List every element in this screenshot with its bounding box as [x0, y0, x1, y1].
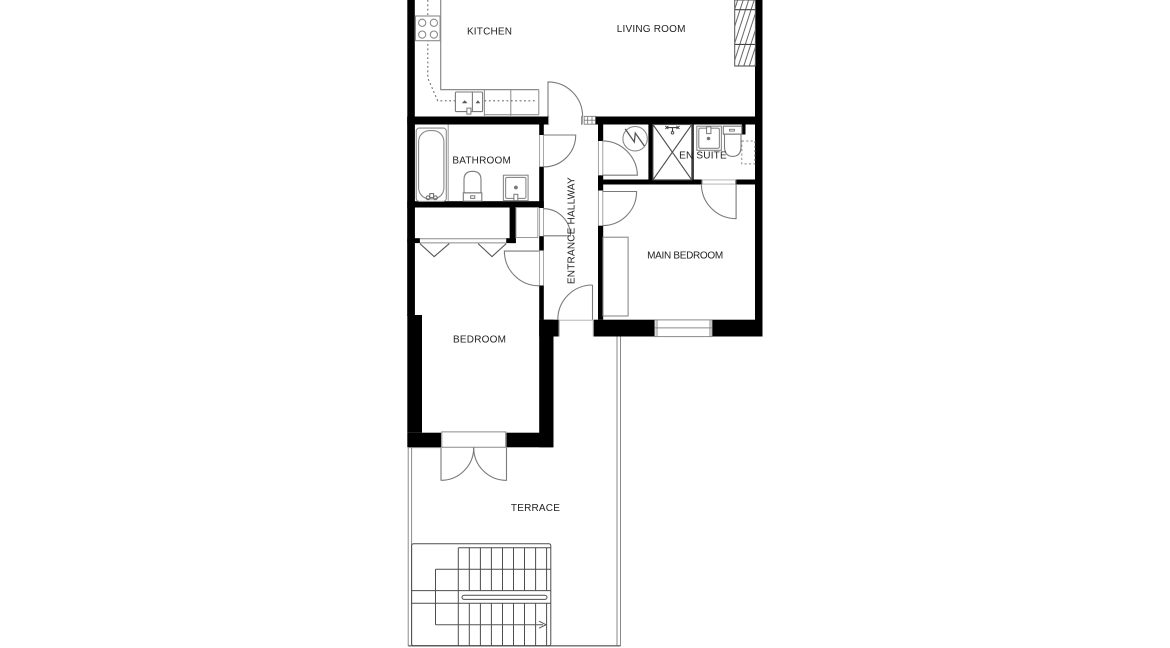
- svg-text:BATHROOM: BATHROOM: [452, 155, 511, 166]
- svg-text:ENTRANCE HALLWAY: ENTRANCE HALLWAY: [566, 177, 577, 284]
- svg-text:KITCHEN: KITCHEN: [467, 26, 512, 37]
- svg-text:EN SUITE: EN SUITE: [679, 151, 727, 162]
- svg-text:LIVING ROOM: LIVING ROOM: [617, 24, 686, 35]
- svg-text:TERRACE: TERRACE: [511, 503, 560, 514]
- svg-text:MAIN BEDROOM: MAIN BEDROOM: [647, 251, 723, 262]
- svg-text:BEDROOM: BEDROOM: [453, 335, 506, 346]
